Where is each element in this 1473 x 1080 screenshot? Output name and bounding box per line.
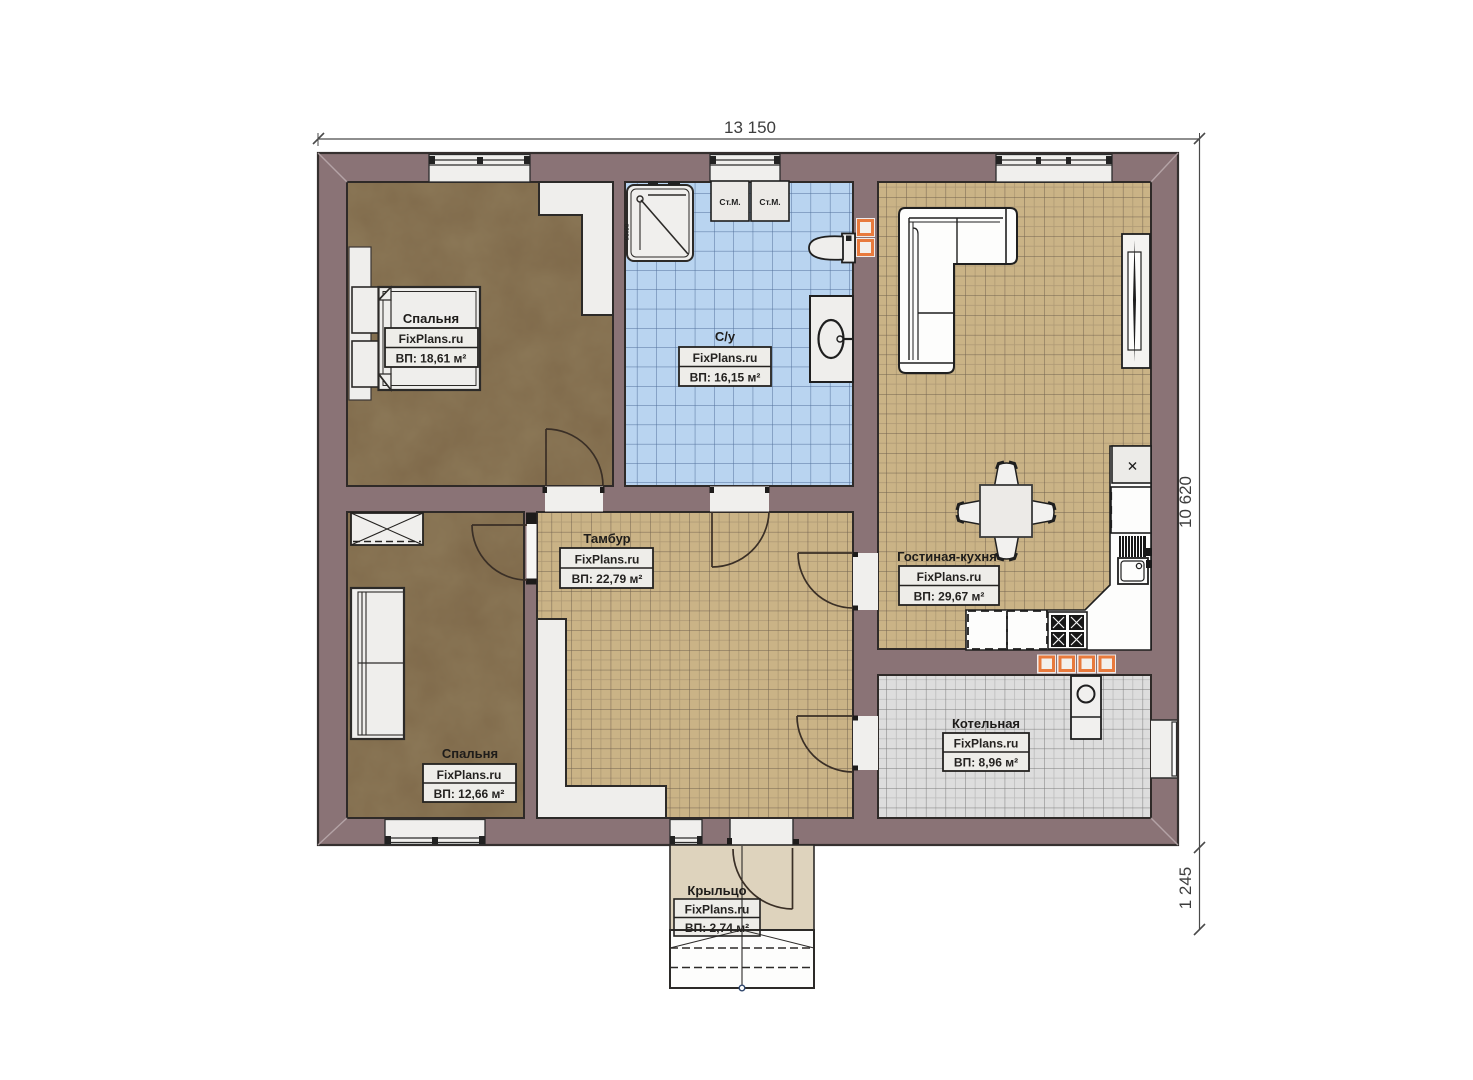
svg-text:Спальня: Спальня	[403, 311, 459, 326]
svg-text:ВП: 12,66 м²: ВП: 12,66 м²	[434, 787, 505, 801]
svg-text:ВП: 29,67 м²: ВП: 29,67 м²	[914, 590, 985, 604]
svg-text:ВП: 18,61 м²: ВП: 18,61 м²	[396, 352, 467, 366]
svg-text:ВП: 8,96 м²: ВП: 8,96 м²	[954, 756, 1018, 770]
svg-text:Крыльцо: Крыльцо	[687, 883, 746, 898]
svg-text:13 150: 13 150	[724, 118, 776, 137]
svg-text:10 620: 10 620	[1176, 476, 1195, 528]
svg-text:Ст.М.: Ст.М.	[719, 197, 740, 207]
svg-text:1 245: 1 245	[1176, 867, 1195, 910]
svg-text:FixPlans.ru: FixPlans.ru	[437, 768, 502, 782]
svg-text:FixPlans.ru: FixPlans.ru	[575, 553, 640, 567]
svg-text:С/у: С/у	[715, 329, 736, 344]
svg-text:FixPlans.ru: FixPlans.ru	[685, 903, 750, 917]
svg-text:FixPlans.ru: FixPlans.ru	[399, 332, 464, 346]
svg-text:Спальня: Спальня	[442, 746, 498, 761]
svg-text:FixPlans.ru: FixPlans.ru	[693, 351, 758, 365]
svg-text:Котельная: Котельная	[952, 716, 1020, 731]
svg-text:90х90: 90х90	[625, 223, 631, 240]
svg-text:FixPlans.ru: FixPlans.ru	[917, 570, 982, 584]
svg-text:ВП: 16,15 м²: ВП: 16,15 м²	[690, 371, 761, 385]
svg-text:ВП: 2,74 м²: ВП: 2,74 м²	[685, 921, 749, 935]
svg-text:ВП: 22,79 м²: ВП: 22,79 м²	[572, 572, 643, 586]
svg-text:FixPlans.ru: FixPlans.ru	[954, 737, 1019, 751]
svg-text:Тамбур: Тамбур	[583, 531, 630, 546]
svg-text:Гостиная-кухня: Гостиная-кухня	[897, 549, 997, 564]
svg-text:Ст.М.: Ст.М.	[759, 197, 780, 207]
